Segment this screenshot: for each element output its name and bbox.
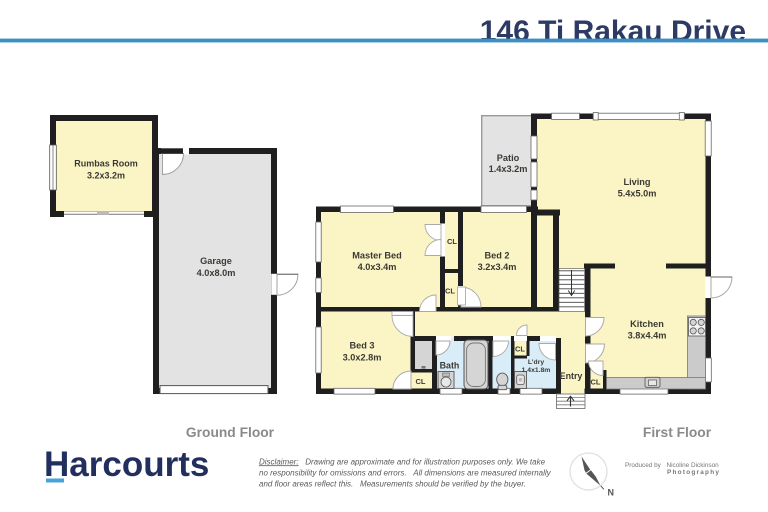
svg-text:1.4x3.2m: 1.4x3.2m [489,164,528,174]
svg-text:Master Bed: Master Bed [352,251,402,261]
svg-text:CL: CL [515,345,525,354]
svg-text:CL: CL [447,237,457,246]
svg-text:Ground Floor: Ground Floor [186,425,275,440]
svg-text:1.4x1.8m: 1.4x1.8m [522,367,551,374]
svg-text:CL: CL [416,377,426,386]
svg-text:Bed 2: Bed 2 [484,251,509,261]
svg-text:CL: CL [591,378,601,387]
svg-text:3.2x3.2m: 3.2x3.2m [87,171,125,181]
svg-text:no responsibility for omission: no responsibility for omissions and erro… [259,468,552,477]
svg-text:3.0x2.8m: 3.0x2.8m [343,353,382,363]
svg-text:Kitchen: Kitchen [630,319,664,329]
svg-text:CL: CL [445,287,455,296]
svg-text:Produced by: Produced by [625,462,662,469]
svg-text:4.0x8.0m: 4.0x8.0m [197,268,236,278]
svg-text:Garage: Garage [200,256,232,266]
svg-text:Rumbas Room: Rumbas Room [74,159,138,169]
svg-text:Bed 3: Bed 3 [349,341,374,351]
svg-text:and floor areas reflect this.: and floor areas reflect this. Measuremen… [259,479,526,488]
svg-text:Patio: Patio [497,153,520,163]
svg-text:Disclaimer: Drawing are appr: Disclaimer: Drawing are approximate and … [259,457,546,466]
svg-text:5.4x5.0m: 5.4x5.0m [618,189,657,199]
svg-text:Harcourts: Harcourts [44,445,209,484]
svg-text:Living: Living [623,177,650,187]
svg-text:4.0x3.4m: 4.0x3.4m [358,262,397,272]
svg-text:Photography: Photography [667,469,720,476]
svg-text:Bath: Bath [440,361,460,371]
svg-text:N: N [608,488,615,498]
svg-text:3.8x4.4m: 3.8x4.4m [628,331,667,341]
svg-text:146 Ti Rakau Drive: 146 Ti Rakau Drive [480,15,746,48]
svg-text:Entry: Entry [560,371,583,381]
svg-text:L’dry: L’dry [528,359,544,366]
svg-text:First Floor: First Floor [643,425,712,440]
svg-text:3.2x3.4m: 3.2x3.4m [478,262,517,272]
